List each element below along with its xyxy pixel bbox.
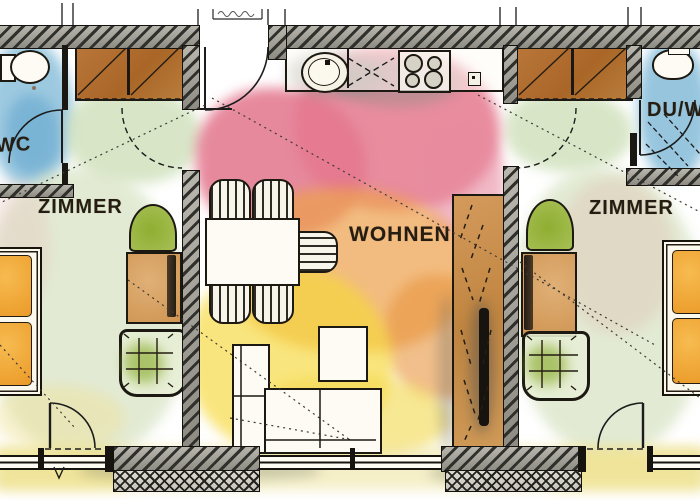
dining-chair-top-1: [209, 179, 251, 221]
wardrobe-right: [516, 45, 633, 101]
wall-top-left: [0, 25, 200, 49]
cooktop-burner-1: [404, 54, 423, 73]
wall-pier-hall-left: [182, 45, 200, 110]
bed-right-mattress-1: [672, 250, 700, 314]
wc-label: WC: [0, 133, 32, 158]
wall-bottom-left: [113, 446, 260, 472]
dining-chair-right: [296, 231, 338, 273]
insulation-bottom-right: [445, 470, 582, 492]
wardrobe-left: [75, 45, 186, 101]
living-label: WOHNEN: [349, 223, 451, 247]
cooktop-burner-4: [424, 70, 443, 89]
tv-screen: [479, 308, 489, 426]
bedroom-left-door-swing-dashed: [122, 108, 182, 168]
wall-bottom-right: [441, 446, 580, 472]
plant-table-left: [119, 329, 187, 397]
plant-table-right: [522, 331, 590, 401]
window-bottom-right: [651, 455, 700, 470]
wardrobe-left-divider: [127, 47, 130, 95]
entry-dimension-bracket: [213, 9, 262, 19]
wall-bath-lower: [630, 133, 637, 166]
window-bottom-left: [0, 455, 113, 470]
wall-living-bedroomright: [503, 166, 519, 450]
armchair-right-backrest: [524, 255, 533, 330]
jamb-balcony-right-b: [647, 446, 653, 472]
plant-arch-right: [526, 199, 574, 251]
dimension-ticks: [62, 3, 641, 25]
shower-dash-1: [648, 122, 688, 166]
kitchen-outlet-dot: [472, 76, 475, 79]
wall-pier-kitchen: [268, 25, 287, 60]
wall-bedroomleft-living: [182, 170, 200, 450]
plant-arch-left: [129, 204, 177, 252]
bedroom-right-label: ZIMMER: [589, 197, 674, 220]
wall-pier-hall-right: [503, 45, 518, 104]
cooktop-burner-2: [427, 56, 442, 71]
wall-wc-lower: [62, 163, 68, 186]
sofa-bottom-section: [264, 388, 382, 454]
wall-wc-upper: [62, 45, 68, 110]
jamb-balcony-left: [105, 446, 113, 472]
bed-left-mattress-2: [0, 322, 32, 386]
bed-left-mattress-1: [0, 255, 32, 317]
bedroom-left-label: ZIMMER: [38, 196, 123, 219]
window-post-left: [38, 448, 44, 470]
bath-right-label: DU/WC: [647, 99, 700, 122]
dining-chair-bottom-1: [209, 282, 251, 324]
dining-table: [205, 218, 300, 286]
bed-right-mattress-2: [672, 318, 700, 384]
cooktop-burner-3: [405, 73, 420, 88]
kitchen-outlet-symbol: [468, 72, 481, 86]
dining-chair-bottom-2: [252, 282, 294, 324]
balcony-door-right-arc: [598, 403, 643, 448]
armchair-left-backrest: [167, 255, 176, 317]
wall-bath-pier: [626, 45, 642, 99]
toilet-bowl: [10, 50, 50, 84]
wardrobe-right-divider: [571, 47, 574, 95]
kitchen-faucet-dot: [325, 60, 330, 65]
bedroom-right-door-swing-dashed: [516, 108, 576, 168]
kitchen-sink-basin: [308, 58, 340, 86]
coffee-table: [318, 326, 368, 382]
wash-hall-right-green: [505, 90, 633, 172]
insulation-bottom-left: [113, 470, 260, 492]
balcony-door-left-arc: [50, 403, 95, 448]
window-post-center: [350, 448, 355, 470]
floor-plan: WC ZIMMER WOHNEN ZIMMER DU/WC: [0, 0, 700, 500]
wall-bath-bottom: [626, 168, 700, 186]
jamb-balcony-right-a: [578, 446, 586, 472]
dining-chair-top-2: [252, 179, 294, 221]
entry-door-arc: [205, 47, 268, 110]
toilet-drain-dot: [32, 86, 36, 90]
